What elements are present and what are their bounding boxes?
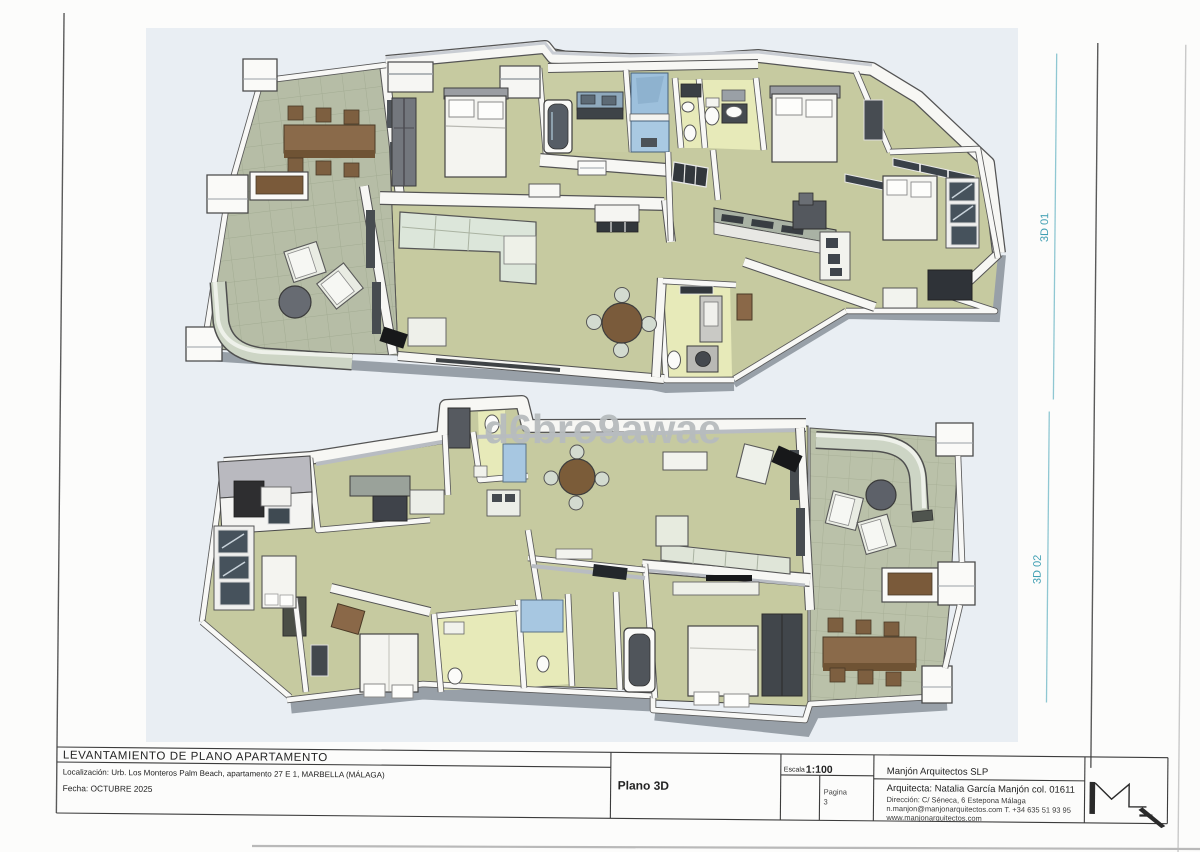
svg-text:Pagina: Pagina: [824, 787, 848, 796]
svg-text:1:100: 1:100: [806, 764, 833, 776]
svg-text:Plano 3D: Plano 3D: [618, 778, 670, 792]
svg-text:d6bro9awae: d6bro9awae: [484, 406, 721, 452]
svg-text:www.manjonarquitectos.com: www.manjonarquitectos.com: [885, 813, 982, 823]
svg-text:3D 02: 3D 02: [1032, 555, 1044, 584]
svg-text:3: 3: [823, 797, 827, 806]
svg-text:Fecha: OCTUBRE 2025: Fecha: OCTUBRE 2025: [63, 783, 153, 794]
svg-text:Manjón Arquitectos SLP: Manjón Arquitectos SLP: [887, 766, 989, 778]
svg-text:LEVANTAMIENTO DE PLANO APARTAM: LEVANTAMIENTO DE PLANO APARTAMENTO: [63, 750, 328, 765]
svg-text:Arquitecta: Natalia García Man: Arquitecta: Natalia García Manjón col. 0…: [887, 783, 1075, 796]
svg-text:Escala: Escala: [784, 766, 805, 773]
svg-text:3D 01: 3D 01: [1039, 213, 1051, 242]
